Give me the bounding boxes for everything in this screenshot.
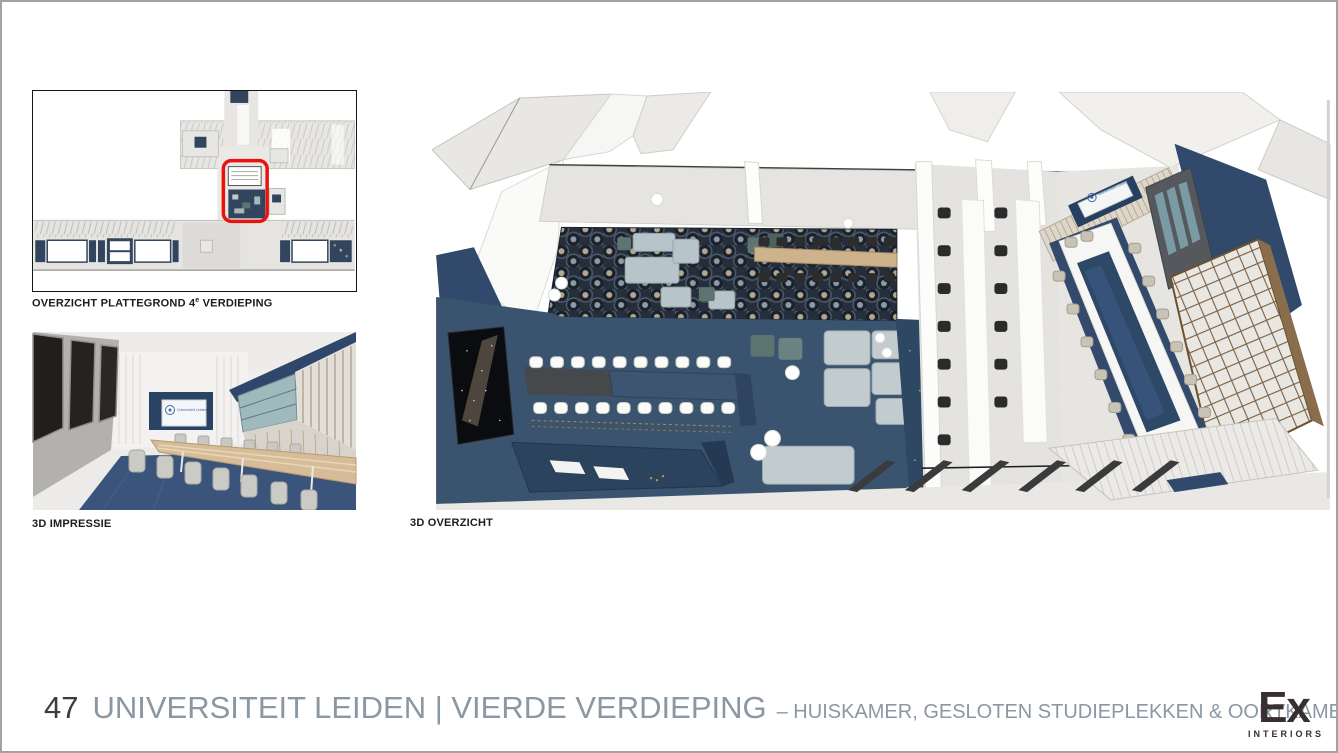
- slide-title: UNIVERSITEIT LEIDEN | VIERDE VERDIEPING: [92, 690, 766, 726]
- overview-render: Universiteit Leiden: [410, 92, 1334, 510]
- floorplan-thumbnail: [32, 90, 357, 292]
- presentation-slide: OVERZICHT PLATTEGROND 4e VERDIEPING: [0, 0, 1338, 753]
- impression-caption: 3D IMPRESSIE: [32, 518, 111, 530]
- slide-footer: 47 UNIVERSITEIT LEIDEN | VIERDE VERDIEPI…: [44, 690, 1338, 726]
- overview-caption: 3D OVERZICHT: [410, 517, 493, 529]
- floorplan-caption: OVERZICHT PLATTEGROND 4e VERDIEPING: [32, 297, 273, 310]
- impression-figure: Universiteit Leiden: [32, 332, 357, 510]
- impression-thumbnail: Universiteit Leiden: [32, 332, 357, 510]
- render-edge-line: [1327, 100, 1330, 498]
- ex-logo-text: Ex: [1248, 688, 1320, 728]
- picture-frame: [33, 334, 63, 442]
- picture-frame: [99, 345, 118, 422]
- floorplan-figure: [33, 91, 355, 290]
- floorplan-caption-prefix: OVERZICHT PLATTEGROND 4: [32, 298, 195, 310]
- page-number: 47: [44, 690, 78, 726]
- ex-logo-subtext: INTERIORS: [1248, 729, 1320, 739]
- universiteit-leiden-logo-screen: Universiteit Leiden: [149, 392, 213, 430]
- picture-frame: [69, 340, 95, 430]
- svg-text:Universiteit Leiden: Universiteit Leiden: [177, 408, 207, 412]
- floorplan-highlight-room: [228, 167, 265, 219]
- pouf: [751, 335, 775, 357]
- floorplan-bottom-wing: [33, 220, 354, 270]
- pouf: [778, 338, 802, 360]
- ex-interiors-logo: Ex INTERIORS: [1248, 688, 1320, 739]
- floorplan-caption-suffix: VERDIEPING: [199, 298, 272, 310]
- galaxy-poster: [448, 327, 514, 444]
- overview-figure: Universiteit Leiden: [410, 92, 1334, 510]
